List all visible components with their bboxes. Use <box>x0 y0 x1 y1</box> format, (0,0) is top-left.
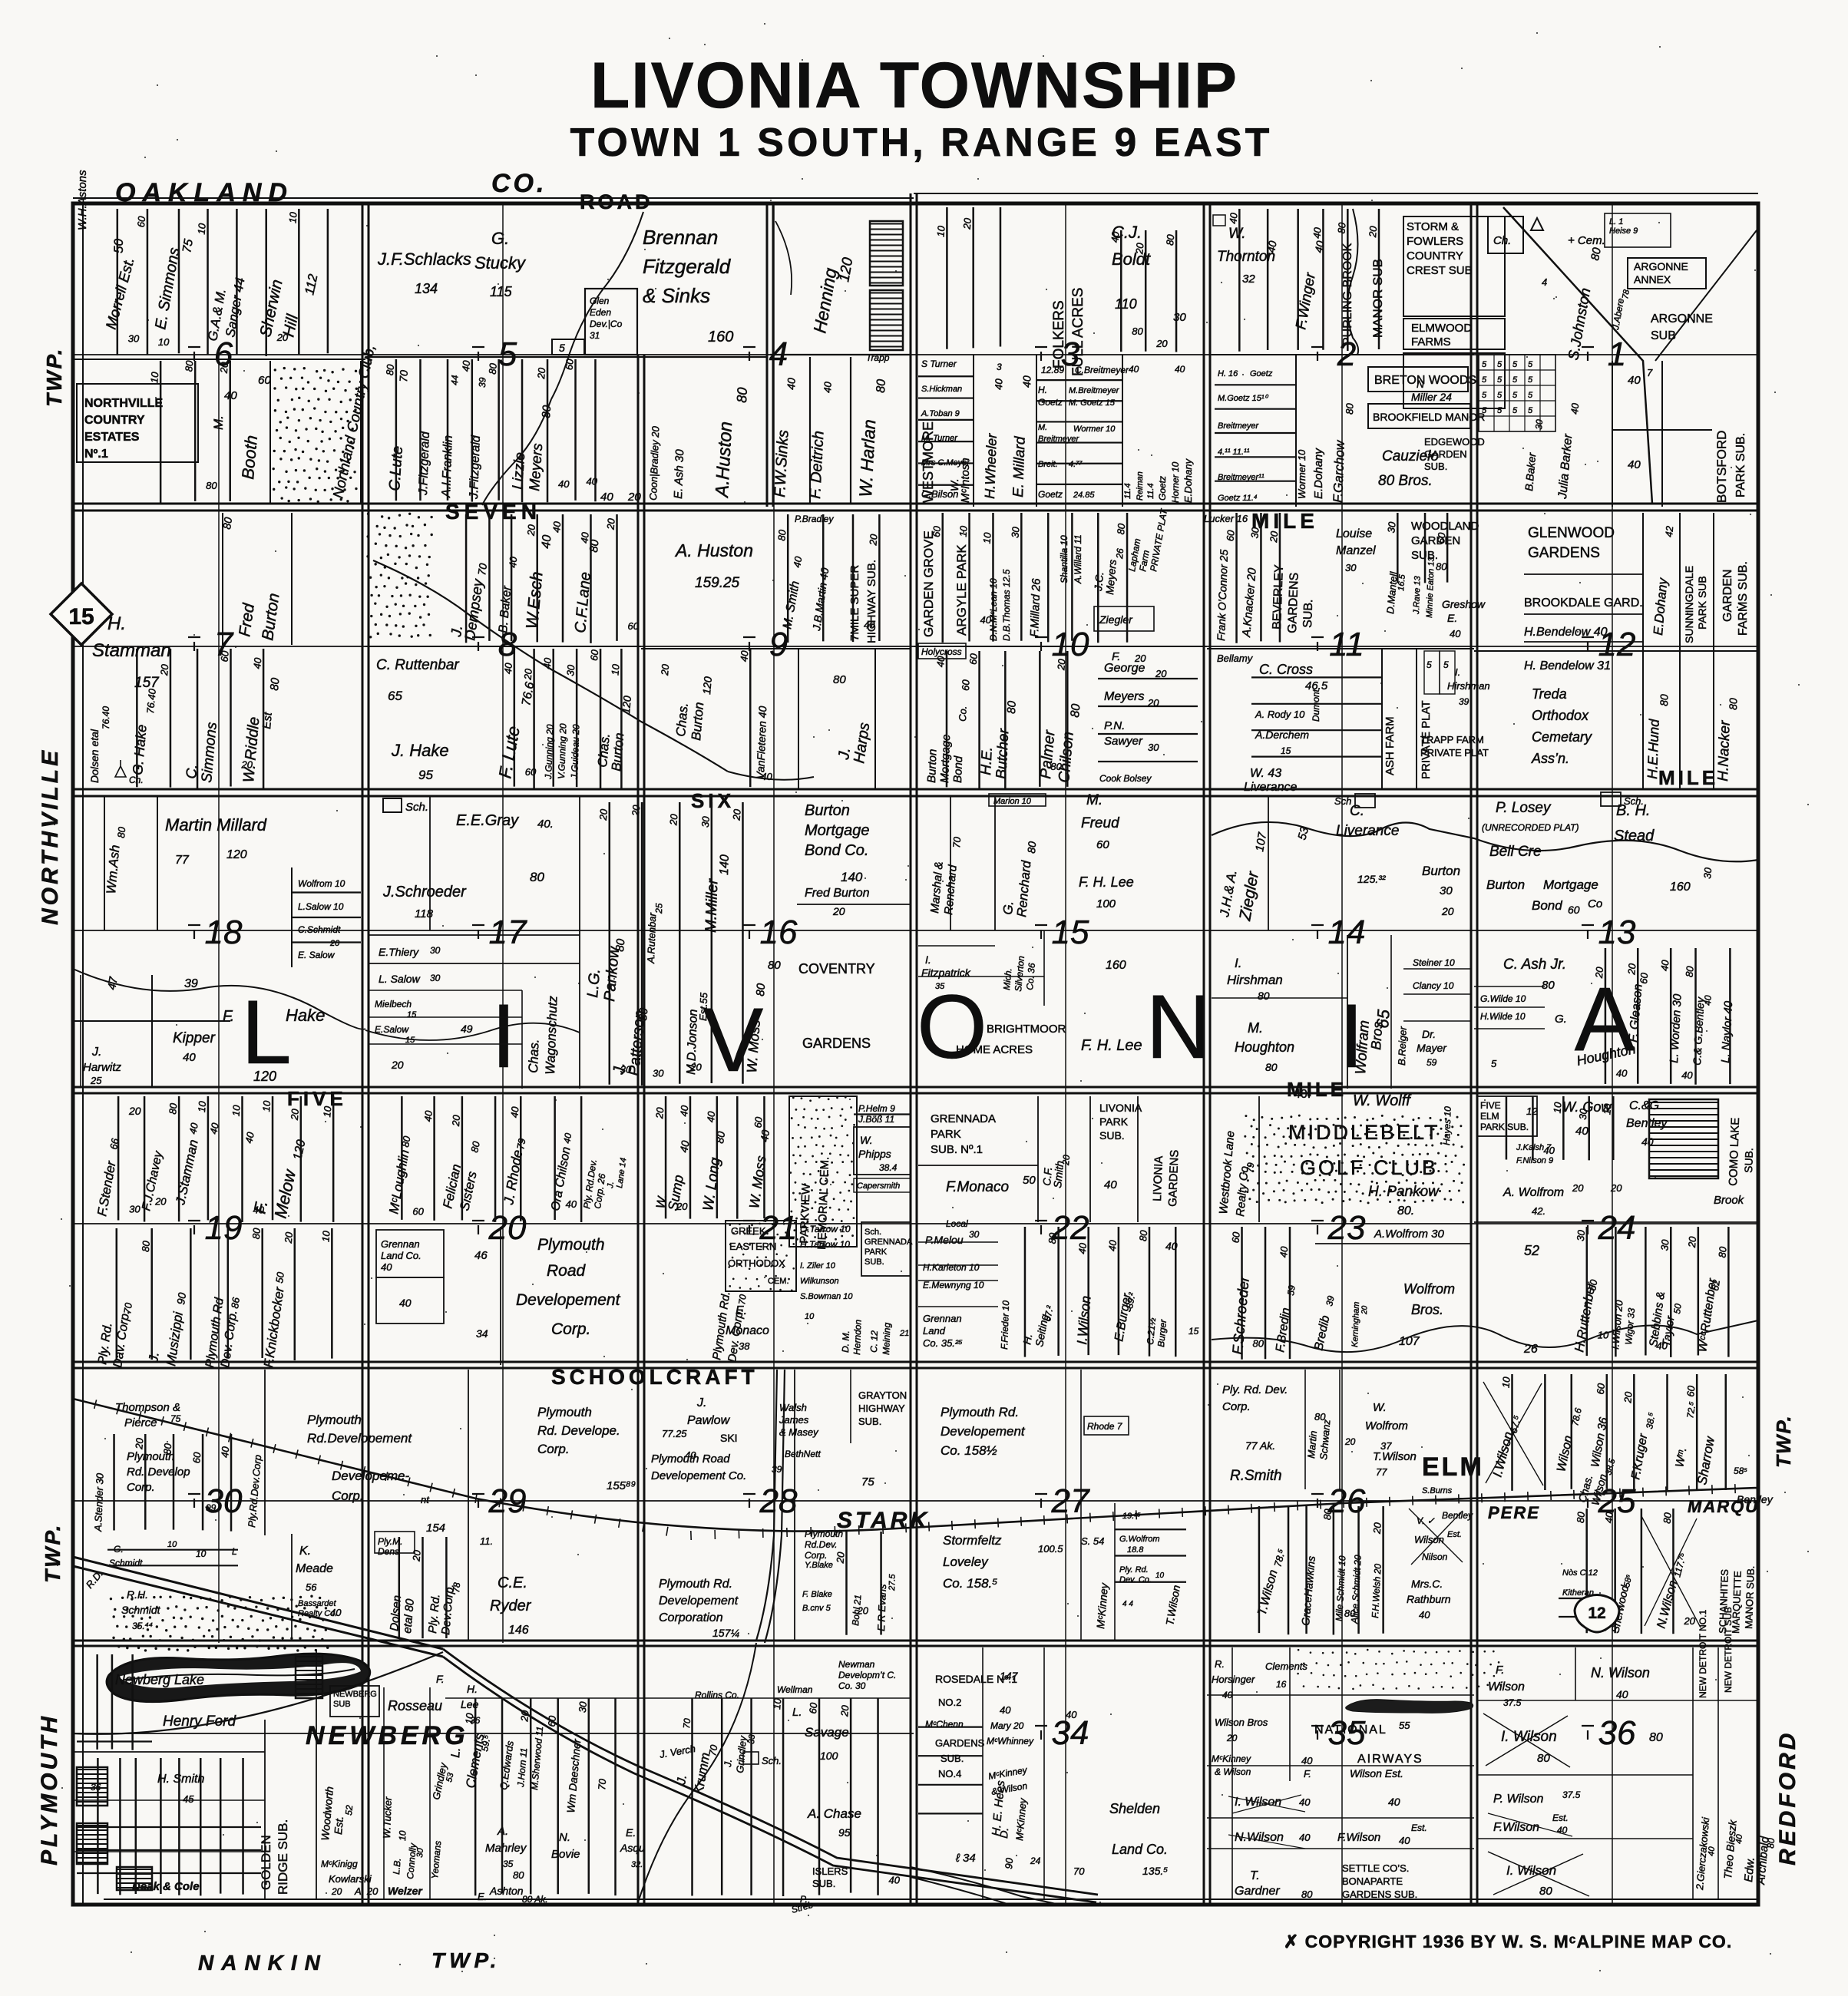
svg-text:Horsinger: Horsinger <box>1212 1674 1255 1685</box>
svg-text:5: 5 <box>1512 406 1518 415</box>
svg-text:TOWN 1 SOUTH, RANGE 9 EAST: TOWN 1 SOUTH, RANGE 9 EAST <box>570 121 1273 165</box>
svg-text:Wormer 10: Wormer 10 <box>1073 425 1116 434</box>
svg-text:Bovie: Bovie <box>551 1848 580 1861</box>
svg-text:W. Harlan: W. Harlan <box>855 419 879 498</box>
svg-text:GARDEN: GARDEN <box>1424 448 1467 460</box>
svg-text:30: 30 <box>128 333 140 345</box>
svg-text:86: 86 <box>229 1296 242 1309</box>
svg-text:WOODLAND: WOODLAND <box>1411 520 1479 533</box>
svg-text:5: 5 <box>1497 406 1503 415</box>
svg-text:30: 30 <box>1345 562 1357 573</box>
svg-text:Shantilla 10: Shantilla 10 <box>1059 535 1069 583</box>
svg-text:80: 80 <box>250 1227 263 1239</box>
svg-text:20: 20 <box>133 1437 145 1450</box>
svg-text:27.5: 27.5 <box>888 1573 898 1591</box>
svg-text:Est: Est <box>260 711 275 729</box>
svg-text:W.Esch: W.Esch <box>522 571 546 630</box>
svg-text:5: 5 <box>1528 360 1533 369</box>
svg-text:40: 40 <box>1628 458 1641 471</box>
svg-text:Fitzpatrick: Fitzpatrick <box>921 967 971 979</box>
svg-text:H.Wheeler: H.Wheeler <box>982 432 1000 499</box>
svg-text:Kipper: Kipper <box>173 1030 216 1046</box>
svg-text:GARDEN: GARDEN <box>1721 570 1734 622</box>
svg-text:SUB.: SUB. <box>1742 1148 1755 1173</box>
svg-text:Goetz: Goetz <box>1157 476 1168 501</box>
svg-text:BRETON WOODS: BRETON WOODS <box>1374 374 1476 387</box>
svg-text:PRIVATE PLAT: PRIVATE PLAT <box>1420 747 1489 758</box>
svg-text:80: 80 <box>1025 841 1038 854</box>
svg-text:FARMS SUB.: FARMS SUB. <box>1737 561 1750 636</box>
svg-text:60: 60 <box>135 215 147 227</box>
svg-text:125.³²: 125.³² <box>1357 873 1387 885</box>
svg-text:Musizippi: Musizippi <box>164 1310 186 1367</box>
svg-text:Chas.: Chas. <box>673 702 691 737</box>
svg-text:J.Fitzgerald: J.Fitzgerald <box>468 435 483 500</box>
svg-text:H.Karleton 10: H.Karleton 10 <box>923 1262 980 1273</box>
svg-text:20: 20 <box>867 533 879 546</box>
svg-text:F.: F. <box>436 1673 445 1685</box>
svg-text:C.&G: C.&G <box>1629 1099 1659 1112</box>
svg-text:GOLF CLUB: GOLF CLUB <box>1300 1156 1438 1179</box>
svg-text:60: 60 <box>1568 904 1580 916</box>
svg-text:F.Frieder 10: F.Frieder 10 <box>999 1300 1011 1350</box>
svg-text:Plymouth Road: Plymouth Road <box>651 1452 730 1466</box>
svg-text:C.& G.Bentley: C.& G.Bentley <box>1691 996 1707 1066</box>
svg-text:30: 30 <box>969 1229 980 1240</box>
svg-text:H. 16: H. 16 <box>1218 369 1238 378</box>
svg-text:NEWBERG: NEWBERG <box>306 1721 469 1750</box>
svg-text:M. Turner: M. Turner <box>921 434 958 443</box>
svg-text:I.: I. <box>1235 956 1241 970</box>
svg-text:F.W.Sinks: F.W.Sinks <box>772 429 792 497</box>
svg-text:5: 5 <box>1482 391 1487 400</box>
svg-text:80: 80 <box>1265 1061 1278 1073</box>
svg-text:59: 59 <box>1426 1057 1437 1068</box>
svg-text:Newberg Lake: Newberg Lake <box>115 1672 204 1687</box>
svg-text:Mich.: Mich. <box>1001 967 1013 990</box>
svg-text:Developement Co.: Developement Co. <box>651 1469 746 1482</box>
svg-text:Hake: Hake <box>286 1006 325 1025</box>
svg-text:40: 40 <box>1575 1125 1588 1138</box>
svg-text:Clancy 10: Clancy 10 <box>1413 980 1454 991</box>
svg-text:80: 80 <box>636 1007 650 1022</box>
svg-text:50: 50 <box>1023 1174 1036 1187</box>
svg-text:60: 60 <box>628 620 640 632</box>
svg-text:80: 80 <box>1684 965 1696 977</box>
svg-text:GARDENS: GARDENS <box>1166 1149 1182 1207</box>
svg-text:L. Naylor 40: L. Naylor 40 <box>1719 1000 1735 1063</box>
svg-text:80: 80 <box>1069 703 1083 718</box>
svg-text:Welzer: Welzer <box>388 1885 423 1897</box>
svg-text:80: 80 <box>1658 694 1671 706</box>
svg-text:Dumont: Dumont <box>1311 689 1321 722</box>
svg-text:GREEK: GREEK <box>731 1225 766 1237</box>
svg-text:40: 40 <box>1301 1755 1313 1766</box>
svg-text:38.⁵: 38.⁵ <box>1644 1412 1658 1430</box>
svg-text:C.J.: C.J. <box>1112 223 1142 242</box>
svg-text:LIVONIA TOWNSHIP: LIVONIA TOWNSHIP <box>590 49 1238 121</box>
svg-text:BethNett: BethNett <box>785 1449 821 1459</box>
svg-text:K.: K. <box>299 1545 311 1558</box>
svg-text:Capersmith: Capersmith <box>857 1181 900 1191</box>
svg-text:16: 16 <box>1276 1679 1287 1690</box>
svg-text:5: 5 <box>1482 406 1487 415</box>
svg-text:V.Gunning 20: V.Gunning 20 <box>556 723 569 779</box>
svg-text:100.5: 100.5 <box>1038 1543 1063 1555</box>
svg-text:20: 20 <box>1441 905 1454 917</box>
svg-text:Corp.: Corp. <box>537 1442 570 1456</box>
svg-text:4: 4 <box>1542 276 1547 288</box>
svg-text:GARDENS: GARDENS <box>935 1737 985 1749</box>
svg-text:39.²: 39.² <box>1124 1291 1138 1310</box>
svg-text:J.B.Martin 40: J.B.Martin 40 <box>810 567 831 632</box>
svg-text:Wormer 10: Wormer 10 <box>1296 449 1307 499</box>
svg-text:C.Breitmeyer: C.Breitmeyer <box>1075 365 1129 375</box>
svg-text:53: 53 <box>445 1771 455 1783</box>
svg-text:Bond: Bond <box>951 755 965 783</box>
svg-text:Bond: Bond <box>1532 898 1562 913</box>
svg-text:Stormfeltz: Stormfeltz <box>943 1533 1002 1548</box>
svg-text:J. Hake: J. Hake <box>391 741 449 760</box>
svg-text:Herndon: Herndon <box>851 1319 864 1355</box>
svg-text:Asqu: Asqu <box>620 1842 645 1854</box>
svg-text:I. Ziler 10: I. Ziler 10 <box>800 1261 836 1271</box>
svg-text:Est.: Est. <box>1411 1823 1427 1833</box>
svg-text:Rd. Develope.: Rd. Develope. <box>537 1423 620 1438</box>
svg-text:10: 10 <box>981 531 993 544</box>
svg-text:70: 70 <box>681 1717 693 1729</box>
svg-text:60: 60 <box>967 653 980 665</box>
svg-text:PARK SUB.: PARK SUB. <box>1480 1122 1529 1132</box>
svg-text:Holycross: Holycross <box>921 646 962 657</box>
svg-text:Co. 30: Co. 30 <box>838 1680 866 1691</box>
svg-text:Mrs.C.: Mrs.C. <box>1411 1578 1443 1590</box>
svg-text:Deak & Cole: Deak & Cole <box>132 1880 200 1893</box>
svg-text:28: 28 <box>759 1482 798 1520</box>
svg-text:5: 5 <box>1482 375 1487 385</box>
svg-text:W.: W. <box>1373 1401 1387 1414</box>
svg-text:52: 52 <box>343 1804 355 1816</box>
svg-text:D.B.Thomas 12.5: D.B.Thomas 12.5 <box>1001 569 1012 641</box>
svg-text:Breitmeyer¹¹: Breitmeyer¹¹ <box>1218 473 1265 482</box>
svg-text:SKI: SKI <box>720 1432 738 1444</box>
svg-text:NATIONAL: NATIONAL <box>1314 1723 1387 1737</box>
svg-text:40: 40 <box>677 1139 691 1153</box>
svg-text:78.⁵: 78.⁵ <box>1271 1548 1288 1568</box>
svg-text:Monaco: Monaco <box>726 1324 769 1337</box>
svg-text:Wolfrom: Wolfrom <box>1403 1281 1455 1297</box>
svg-text:Freud: Freud <box>1081 815 1120 831</box>
svg-text:E.: E. <box>626 1826 636 1839</box>
svg-text:LIVONIA: LIVONIA <box>1151 1155 1165 1201</box>
svg-text:BONAPARTE: BONAPARTE <box>1342 1875 1403 1887</box>
svg-text:80: 80 <box>530 870 544 884</box>
svg-text:40: 40 <box>758 1129 772 1143</box>
svg-text:40: 40 <box>561 1132 574 1145</box>
svg-text:30: 30 <box>653 1068 664 1079</box>
svg-text:60: 60 <box>1230 1231 1242 1243</box>
svg-text:80: 80 <box>1344 402 1356 415</box>
svg-text:Ryder: Ryder <box>490 1598 532 1614</box>
svg-text:60: 60 <box>1595 1383 1607 1395</box>
svg-text:140: 140 <box>841 870 863 884</box>
svg-text:H.E.: H.E. <box>978 746 996 775</box>
svg-text:75: 75 <box>180 238 196 254</box>
svg-text:30: 30 <box>1385 520 1397 533</box>
svg-text:L.G.: L.G. <box>584 968 603 999</box>
svg-text:40: 40 <box>540 534 554 549</box>
svg-text:30: 30 <box>430 945 441 956</box>
svg-text:O: O <box>917 977 987 1078</box>
svg-text:Martin Millard: Martin Millard <box>165 815 267 834</box>
svg-text:80: 80 <box>468 1140 482 1154</box>
svg-text:80: 80 <box>587 539 601 554</box>
svg-text:120: 120 <box>700 676 714 695</box>
svg-text:Sharrow: Sharrow <box>1694 1434 1717 1485</box>
svg-text:Corp.: Corp. <box>127 1481 155 1494</box>
svg-text:SUB: SUB <box>333 1700 351 1709</box>
svg-text:5: 5 <box>1528 375 1533 385</box>
svg-text:Rosseau: Rosseau <box>388 1698 442 1713</box>
svg-text:M.: M. <box>211 415 226 430</box>
svg-text:12: 12 <box>1526 1105 1538 1117</box>
svg-text:Developement: Developement <box>941 1424 1026 1439</box>
svg-text:L. 1: L. 1 <box>1609 217 1623 226</box>
svg-text:40: 40 <box>705 1110 717 1122</box>
svg-text:20: 20 <box>653 1106 666 1119</box>
svg-text:Loveley: Loveley <box>943 1555 989 1569</box>
svg-text:4 4: 4 4 <box>1122 1600 1133 1608</box>
svg-text:5: 5 <box>1528 391 1533 400</box>
svg-text:F.: F. <box>1496 1664 1504 1677</box>
svg-text:VanFleteren 40: VanFleteren 40 <box>754 706 769 779</box>
svg-text:MANOR SUB.: MANOR SUB. <box>1743 1565 1757 1629</box>
svg-text:Est.55: Est.55 <box>697 992 709 1021</box>
svg-text:77: 77 <box>175 854 190 867</box>
svg-text:70: 70 <box>596 1778 608 1790</box>
svg-text:40: 40 <box>791 555 804 569</box>
svg-text:G.Wilde 10: G.Wilde 10 <box>1480 993 1526 1004</box>
svg-text:A.Willard 11: A.Willard 11 <box>1073 534 1083 584</box>
svg-text:Mortgage: Mortgage <box>1543 877 1598 892</box>
svg-text:40: 40 <box>1066 1709 1077 1720</box>
svg-text:Brennan: Brennan <box>643 226 718 249</box>
svg-text:Miller 24: Miller 24 <box>1411 391 1452 403</box>
svg-text:40: 40 <box>1129 364 1139 375</box>
svg-text:N: N <box>1145 977 1211 1078</box>
svg-text:GARDEN GROVE: GARDEN GROVE <box>921 530 936 637</box>
svg-text:Wilkunson: Wilkunson <box>800 1277 839 1286</box>
svg-text:TWP.: TWP. <box>431 1948 501 1972</box>
svg-text:40: 40 <box>1106 1239 1119 1251</box>
svg-text:20: 20 <box>391 1059 404 1071</box>
svg-text:SUNNINGDALE: SUNNINGDALE <box>1683 566 1695 643</box>
svg-text:80: 80 <box>1539 1885 1552 1898</box>
svg-text:20: 20 <box>597 808 610 821</box>
svg-text:80.: 80. <box>1397 1205 1414 1218</box>
svg-text:Sch.: Sch. <box>405 801 428 814</box>
svg-text:80: 80 <box>874 378 888 393</box>
svg-text:20: 20 <box>1572 1182 1584 1194</box>
svg-text:10: 10 <box>1598 1330 1609 1341</box>
svg-text:80: 80 <box>1301 1889 1313 1900</box>
svg-text:79: 79 <box>1245 1162 1256 1173</box>
svg-text:20: 20 <box>1610 1182 1622 1194</box>
svg-text:Dev. Co.: Dev. Co. <box>1119 1575 1152 1585</box>
svg-text:SUB.: SUB. <box>812 1878 835 1889</box>
svg-text:67.⁵: 67.⁵ <box>1507 1414 1523 1435</box>
svg-text:M.Miller: M.Miller <box>703 877 721 933</box>
svg-text:F.: F. <box>223 1008 234 1025</box>
svg-text:M.: M. <box>1086 792 1103 808</box>
svg-text:PARK SUB: PARK SUB <box>1696 576 1708 630</box>
svg-text:40: 40 <box>422 1109 435 1122</box>
svg-text:37.5: 37.5 <box>1503 1697 1522 1708</box>
svg-text:24.85: 24.85 <box>1073 491 1095 500</box>
svg-text:PLYMOUTH: PLYMOUTH <box>37 1713 62 1865</box>
svg-text:W. Riddle: W. Riddle <box>240 716 263 784</box>
svg-text:ELM: ELM <box>1480 1111 1499 1122</box>
svg-text:MIDDLEBELT: MIDDLEBELT <box>1288 1121 1440 1144</box>
svg-text:Wᵐ.: Wᵐ. <box>1673 1446 1689 1468</box>
svg-text:W. 43: W. 43 <box>1250 767 1281 780</box>
svg-text:MᶜKinney: MᶜKinney <box>1013 1796 1029 1841</box>
svg-text:Burger: Burger <box>1155 1318 1169 1347</box>
svg-text:10: 10 <box>934 225 947 237</box>
svg-text:GLENWOOD: GLENWOOD <box>1528 525 1615 541</box>
svg-text:D. M.: D. M. <box>840 1330 851 1353</box>
svg-text:Marion 10: Marion 10 <box>993 797 1032 806</box>
svg-text:Greshow: Greshow <box>1442 598 1486 610</box>
svg-text:Dens: Dens <box>378 1546 399 1557</box>
svg-text:Road: Road <box>547 1262 587 1280</box>
svg-text:52: 52 <box>1524 1243 1539 1258</box>
svg-text:Rathburn: Rathburn <box>1407 1593 1451 1605</box>
svg-text:& Sinks: & Sinks <box>643 284 710 307</box>
svg-text:W.Tucker: W.Tucker <box>381 1796 394 1839</box>
svg-text:10: 10 <box>321 1105 333 1117</box>
svg-text:67.²: 67.² <box>1042 1304 1056 1323</box>
svg-text:20: 20 <box>1371 1522 1384 1535</box>
svg-text:80: 80 <box>1005 700 1019 714</box>
svg-text:J.F.Schlacks: J.F.Schlacks <box>377 249 471 269</box>
svg-text:J.Gunning 20: J.Gunning 20 <box>543 724 556 780</box>
svg-text:Rhode 7: Rhode 7 <box>1087 1421 1123 1432</box>
svg-text:ELMWOOD: ELMWOOD <box>1411 322 1472 335</box>
svg-text:38: 38 <box>739 1340 750 1352</box>
svg-text:78: 78 <box>451 1581 462 1593</box>
svg-text:40: 40 <box>1628 374 1641 387</box>
svg-text:155⁸⁹: 155⁸⁹ <box>607 1479 636 1492</box>
svg-text:40: 40 <box>381 1261 392 1273</box>
svg-text:1: 1 <box>1608 335 1626 373</box>
svg-text:A.Toban 9: A.Toban 9 <box>921 409 960 418</box>
svg-text:R.: R. <box>1215 1658 1225 1670</box>
svg-text:5: 5 <box>1443 659 1449 670</box>
svg-text:STORM &: STORM & <box>1407 220 1459 233</box>
svg-text:Rd.Dev.: Rd.Dev. <box>805 1539 837 1550</box>
svg-text:C.: C. <box>1350 803 1364 819</box>
svg-text:SUB.: SUB. <box>864 1257 884 1267</box>
svg-text:W. Moss: W. Moss <box>746 1155 769 1209</box>
svg-text:26: 26 <box>1114 547 1126 560</box>
svg-text:MᶜKinigg: MᶜKinigg <box>321 1859 358 1869</box>
svg-text:Wilson Est.: Wilson Est. <box>1350 1767 1403 1780</box>
svg-text:30: 30 <box>1248 526 1261 538</box>
svg-text:BROOKFIELD MANOR: BROOKFIELD MANOR <box>1373 411 1485 423</box>
svg-text:20: 20 <box>604 517 617 530</box>
svg-text:157¼: 157¼ <box>712 1627 739 1639</box>
svg-text:SUB.: SUB. <box>1301 599 1315 628</box>
svg-text:Manzel: Manzel <box>1336 544 1376 557</box>
svg-text:90: 90 <box>174 1292 188 1306</box>
svg-text:H.: H. <box>1038 385 1047 395</box>
svg-text:S.Hickman: S.Hickman <box>921 385 962 394</box>
svg-text:20: 20 <box>1155 338 1168 349</box>
svg-text:SCHOOLCRAFT: SCHOOLCRAFT <box>551 1365 759 1389</box>
svg-text:Burton: Burton <box>689 702 706 742</box>
svg-text:MᶜKinney: MᶜKinney <box>1094 1582 1110 1630</box>
svg-text:18: 18 <box>205 914 243 951</box>
svg-text:Harps: Harps <box>851 722 873 765</box>
svg-text:E. Millard: E. Millard <box>1010 435 1029 497</box>
svg-text:60: 60 <box>1096 838 1109 851</box>
svg-text:D.N.MᶜLean 10: D.N.MᶜLean 10 <box>988 578 999 641</box>
svg-text:J.Schroeder: J.Schroeder <box>382 884 467 901</box>
svg-text:26: 26 <box>1523 1343 1538 1356</box>
svg-text:5: 5 <box>1497 360 1503 369</box>
svg-text:SUB.: SUB. <box>1099 1129 1125 1142</box>
svg-text:3: 3 <box>997 362 1002 372</box>
svg-text:20: 20 <box>961 217 974 230</box>
svg-text:Hayes 10: Hayes 10 <box>1441 1106 1453 1145</box>
svg-text:Goetz: Goetz <box>1038 489 1063 500</box>
svg-text:90: 90 <box>1003 1857 1015 1869</box>
svg-text:Land: Land <box>923 1325 946 1337</box>
svg-text:J. Verch: J. Verch <box>658 1743 696 1760</box>
svg-text:Lee: Lee <box>461 1698 479 1710</box>
svg-text:80: 80 <box>1542 979 1555 992</box>
svg-text:A.Knacker 20: A.Knacker 20 <box>1240 567 1259 639</box>
svg-text:E.: E. <box>736 1304 747 1317</box>
svg-text:5: 5 <box>1512 360 1518 369</box>
svg-text:Mary 20: Mary 20 <box>990 1720 1024 1731</box>
svg-text:Martin: Martin <box>1305 1430 1319 1459</box>
svg-text:Sch.: Sch. <box>864 1228 881 1237</box>
svg-text:E.: E. <box>1447 612 1457 624</box>
svg-text:CREST SUB: CREST SUB <box>1407 264 1473 277</box>
svg-text:Wolfrom 10: Wolfrom 10 <box>298 878 345 889</box>
svg-text:A.Wolfrom 30: A.Wolfrom 30 <box>1374 1228 1445 1241</box>
svg-text:J. Rhode: J. Rhode <box>501 1148 525 1206</box>
svg-text:Grennan: Grennan <box>381 1238 420 1250</box>
svg-text:44: 44 <box>449 375 460 385</box>
svg-text:Co. 36: Co. 36 <box>1024 962 1037 990</box>
svg-text:E R Evans: E R Evans <box>875 1584 888 1631</box>
svg-text:23: 23 <box>1327 1209 1366 1247</box>
svg-text:42: 42 <box>1663 525 1675 537</box>
svg-text:40: 40 <box>1707 1846 1717 1856</box>
svg-text:30: 30 <box>1575 1229 1587 1241</box>
svg-text:30: 30 <box>564 664 577 676</box>
svg-text:Treda: Treda <box>1532 686 1567 702</box>
svg-text:13: 13 <box>1598 914 1636 951</box>
svg-text:60: 60 <box>219 649 231 662</box>
svg-text:4.⁷⁷: 4.⁷⁷ <box>1069 460 1083 469</box>
svg-text:Mrs C.Meyer: Mrs C.Meyer <box>921 458 970 468</box>
svg-text:G.: G. <box>491 229 509 248</box>
svg-text:159.25: 159.25 <box>695 575 740 591</box>
